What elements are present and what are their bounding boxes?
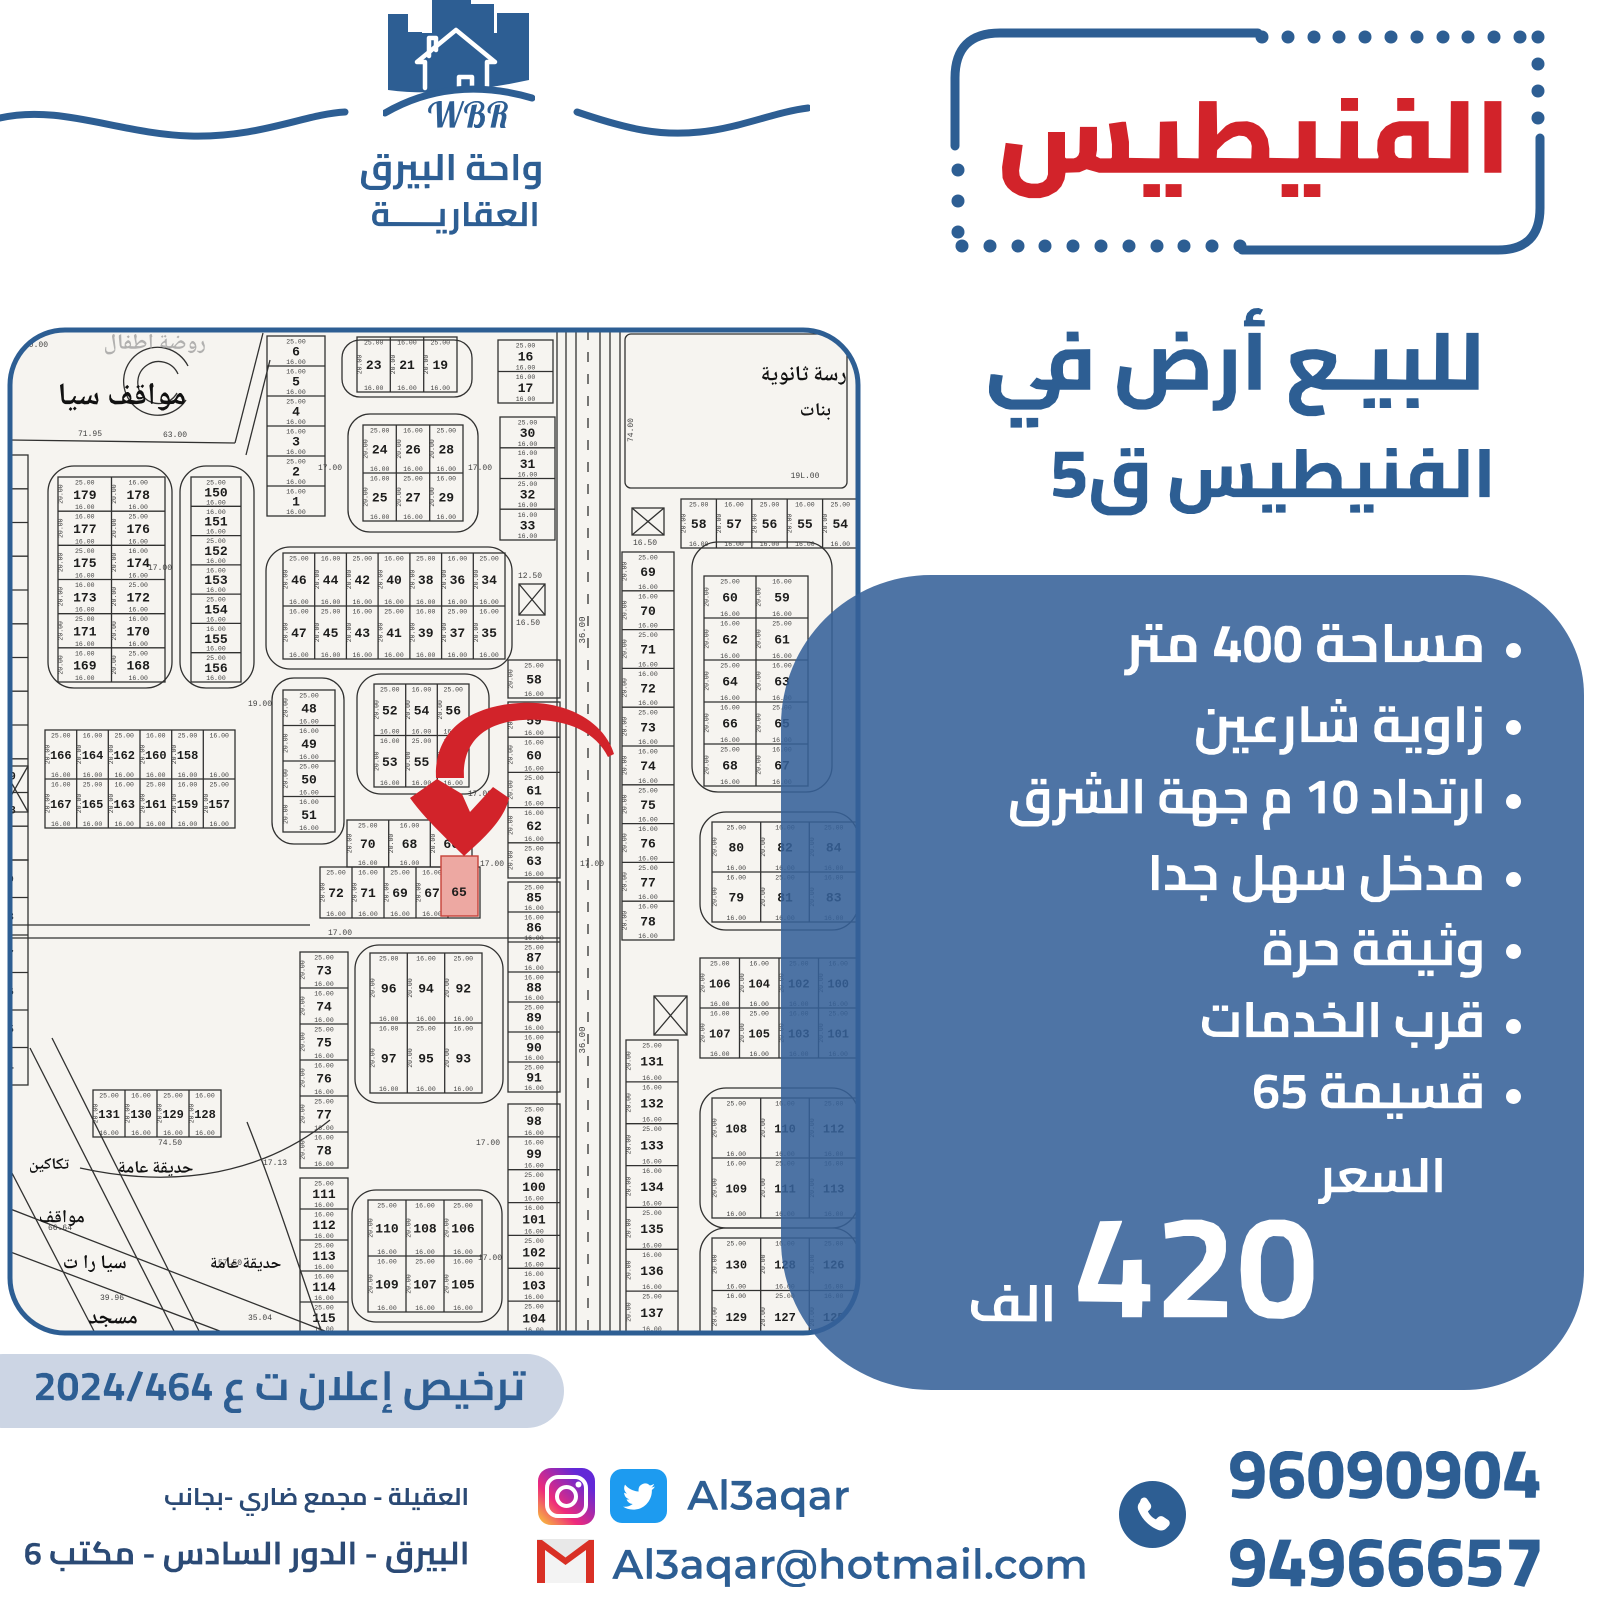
svg-text:107: 107 — [709, 1027, 731, 1041]
svg-text:16.00: 16.00 — [377, 1259, 397, 1266]
svg-text:20.00: 20.00 — [626, 1051, 633, 1071]
svg-text:16.00: 16.00 — [314, 1202, 334, 1209]
svg-text:25.00: 25.00 — [326, 870, 346, 877]
svg-text:25.00: 25.00 — [314, 1181, 334, 1188]
svg-text:20.00: 20.00 — [58, 518, 65, 538]
svg-text:164: 164 — [82, 749, 104, 763]
svg-text:135: 135 — [640, 1222, 664, 1237]
svg-text:16.00: 16.00 — [775, 1336, 795, 1343]
svg-text:20.00: 20.00 — [352, 883, 359, 903]
svg-text:16.00: 16.00 — [524, 801, 544, 808]
svg-text:16.00: 16.00 — [178, 782, 198, 789]
svg-text:20.00: 20.00 — [444, 1048, 451, 1068]
svg-text:159: 159 — [177, 798, 199, 812]
svg-text:25.00: 25.00 — [453, 1203, 473, 1210]
svg-text:20.00: 20.00 — [406, 1274, 413, 1294]
svg-text:16.00: 16.00 — [437, 514, 457, 521]
svg-text:16.00: 16.00 — [380, 780, 400, 787]
svg-text:48: 48 — [301, 701, 317, 716]
svg-text:16.00: 16.00 — [727, 1211, 747, 1218]
svg-text:80: 80 — [728, 841, 744, 856]
svg-text:16.00: 16.00 — [403, 514, 423, 521]
svg-text:20.00: 20.00 — [405, 751, 412, 771]
svg-text:36: 36 — [450, 573, 466, 588]
svg-text:47: 47 — [291, 626, 307, 641]
svg-text:16.00: 16.00 — [416, 599, 436, 606]
svg-text:16.00: 16.00 — [314, 1053, 334, 1060]
svg-text:25.00: 25.00 — [638, 865, 658, 872]
svg-text:20.00: 20.00 — [622, 562, 629, 582]
svg-text:16.00: 16.00 — [727, 1284, 747, 1291]
svg-text:20.00: 20.00 — [171, 745, 178, 765]
svg-text:106: 106 — [451, 1222, 475, 1237]
svg-text:20.00: 20.00 — [756, 671, 763, 691]
svg-text:28: 28 — [438, 443, 454, 458]
svg-text:20.00: 20.00 — [712, 837, 719, 857]
svg-text:12.50: 12.50 — [518, 572, 542, 581]
svg-text:167: 167 — [50, 798, 72, 812]
svg-text:16.00: 16.00 — [516, 396, 536, 403]
svg-text:3: 3 — [292, 435, 300, 450]
svg-text:59: 59 — [774, 591, 790, 606]
svg-text:16.00: 16.00 — [416, 1016, 436, 1023]
svg-text:25.00: 25.00 — [403, 476, 423, 483]
svg-text:16.00: 16.00 — [772, 653, 792, 660]
svg-text:27: 27 — [405, 491, 421, 506]
svg-text:20.00: 20.00 — [760, 1307, 767, 1327]
svg-text:2: 2 — [292, 465, 300, 480]
svg-text:20.00: 20.00 — [58, 621, 65, 641]
svg-text:20.00: 20.00 — [346, 623, 353, 643]
svg-text:20.00: 20.00 — [716, 514, 723, 534]
svg-text:20.00: 20.00 — [370, 978, 377, 998]
svg-text:25.00: 25.00 — [286, 459, 306, 466]
svg-text:19: 19 — [432, 358, 448, 373]
svg-text:16.00: 16.00 — [321, 556, 341, 563]
svg-text:39.96: 39.96 — [100, 1294, 124, 1303]
svg-text:16.00: 16.00 — [403, 428, 423, 435]
svg-text:16.00: 16.00 — [749, 1051, 769, 1058]
svg-text:20.00: 20.00 — [357, 355, 364, 375]
svg-text:16.00: 16.00 — [831, 541, 851, 548]
svg-text:16.00: 16.00 — [384, 599, 404, 606]
svg-text:16.00: 16.00 — [99, 1130, 119, 1137]
svg-text:100: 100 — [522, 1180, 546, 1195]
svg-text:20.00: 20.00 — [409, 570, 416, 590]
svg-text:73: 73 — [640, 720, 656, 735]
svg-text:25.00: 25.00 — [749, 1011, 769, 1018]
svg-text:20.00: 20.00 — [416, 883, 423, 903]
svg-text:16.00: 16.00 — [51, 772, 71, 779]
svg-text:16.00: 16.00 — [390, 911, 410, 918]
svg-text:25.00: 25.00 — [314, 1305, 334, 1312]
svg-text:99: 99 — [526, 1147, 542, 1162]
svg-text:134: 134 — [640, 1180, 664, 1195]
svg-text:17.00: 17.00 — [318, 464, 342, 473]
svg-text:16.00: 16.00 — [206, 646, 226, 653]
svg-text:25.00: 25.00 — [128, 650, 148, 657]
svg-text:58: 58 — [526, 673, 542, 688]
svg-text:25.00: 25.00 — [364, 340, 384, 347]
svg-text:170: 170 — [126, 624, 150, 639]
svg-text:16.00: 16.00 — [286, 369, 306, 376]
svg-text:16.00: 16.00 — [289, 609, 309, 616]
svg-text:16.00: 16.00 — [479, 652, 499, 659]
svg-text:20.00: 20.00 — [822, 514, 829, 534]
svg-text:20.00: 20.00 — [363, 487, 370, 507]
svg-text:50: 50 — [301, 772, 317, 787]
svg-text:16.00: 16.00 — [358, 860, 378, 867]
svg-text:16.00: 16.00 — [353, 599, 373, 606]
svg-text:25.00: 25.00 — [638, 710, 658, 717]
svg-text:25.00: 25.00 — [831, 502, 851, 509]
svg-text:16.00: 16.00 — [397, 385, 417, 392]
svg-text:20.00: 20.00 — [622, 639, 629, 659]
svg-text:150: 150 — [204, 485, 228, 500]
svg-text:127: 127 — [774, 1311, 796, 1325]
svg-text:16.00: 16.00 — [370, 466, 390, 473]
svg-text:25.00: 25.00 — [370, 428, 390, 435]
svg-text:16.00: 16.00 — [727, 875, 747, 882]
svg-text:16.00: 16.00 — [524, 1228, 544, 1235]
svg-text:25.00: 25.00 — [314, 955, 334, 962]
svg-text:16.00: 16.00 — [638, 623, 658, 630]
svg-text:16.00: 16.00 — [437, 476, 457, 483]
svg-text:165: 165 — [82, 798, 104, 812]
svg-text:16.00: 16.00 — [638, 778, 658, 785]
svg-text:20.00: 20.00 — [363, 439, 370, 459]
svg-text:16.00: 16.00 — [299, 754, 319, 761]
svg-text:25.00: 25.00 — [209, 782, 229, 789]
svg-text:16.00: 16.00 — [524, 1130, 544, 1137]
svg-text:151: 151 — [204, 515, 228, 530]
svg-text:1: 1 — [292, 495, 300, 510]
svg-text:54: 54 — [832, 517, 848, 532]
svg-text:25.00: 25.00 — [75, 480, 95, 487]
svg-text:95: 95 — [418, 1052, 434, 1067]
svg-text:25.00: 25.00 — [524, 945, 544, 952]
svg-text:16.00: 16.00 — [710, 1051, 730, 1058]
svg-text:16.00: 16.00 — [710, 1011, 730, 1018]
svg-text:25.00: 25.00 — [727, 825, 747, 832]
svg-text:25.00: 25.00 — [642, 1294, 662, 1301]
svg-text:20.00: 20.00 — [283, 733, 290, 753]
svg-text:16.00: 16.00 — [642, 1168, 662, 1175]
svg-text:16.00: 16.00 — [75, 573, 95, 580]
svg-text:25.00: 25.00 — [377, 1203, 397, 1210]
svg-text:17.00: 17.00 — [468, 464, 492, 473]
svg-text:16.00: 16.00 — [638, 661, 658, 668]
svg-text:71.95: 71.95 — [78, 430, 102, 439]
svg-text:16.00: 16.00 — [720, 611, 740, 618]
svg-text:153: 153 — [204, 573, 228, 588]
svg-text:25.00: 25.00 — [289, 556, 309, 563]
svg-text:16.00: 16.00 — [518, 450, 538, 457]
svg-text:16.00: 16.00 — [75, 650, 95, 657]
svg-text:16.00: 16.00 — [415, 1249, 435, 1256]
svg-text:16.00: 16.00 — [75, 538, 95, 545]
svg-text:16.00: 16.00 — [524, 1139, 544, 1146]
svg-text:16.00: 16.00 — [397, 340, 417, 347]
svg-text:25.00: 25.00 — [206, 538, 226, 545]
svg-text:16.00: 16.00 — [370, 514, 390, 521]
svg-text:25.00: 25.00 — [380, 687, 400, 694]
svg-text:16.00: 16.00 — [326, 911, 346, 918]
svg-text:16.00: 16.00 — [727, 915, 747, 922]
svg-text:16.00: 16.00 — [128, 504, 148, 511]
svg-text:20.00: 20.00 — [622, 911, 629, 931]
svg-text:31: 31 — [520, 457, 536, 472]
svg-text:16.00: 16.00 — [206, 499, 226, 506]
svg-text:16.00: 16.00 — [195, 1130, 215, 1137]
svg-text:16.00: 16.00 — [524, 1261, 544, 1268]
svg-text:25.00: 25.00 — [128, 514, 148, 521]
svg-text:25.00: 25.00 — [760, 502, 780, 509]
svg-text:20.00: 20.00 — [430, 834, 437, 854]
svg-text:25.00: 25.00 — [321, 609, 341, 616]
svg-text:90: 90 — [526, 1041, 542, 1056]
svg-text:16.00: 16.00 — [51, 782, 71, 789]
svg-text:61: 61 — [774, 633, 790, 648]
svg-text:16.00: 16.00 — [524, 965, 544, 972]
svg-text:113: 113 — [312, 1249, 336, 1264]
svg-text:102: 102 — [522, 1246, 546, 1261]
svg-text:108: 108 — [725, 1122, 747, 1136]
svg-text:16.00: 16.00 — [75, 641, 95, 648]
svg-text:52: 52 — [382, 703, 398, 718]
svg-text:20.00: 20.00 — [626, 1177, 633, 1197]
svg-text:16.00: 16.00 — [286, 479, 306, 486]
svg-text:16.00: 16.00 — [299, 799, 319, 806]
svg-text:20.00: 20.00 — [368, 1274, 375, 1294]
svg-text:20.00: 20.00 — [76, 794, 83, 814]
svg-text:20.00: 20.00 — [508, 780, 515, 800]
svg-text:107: 107 — [413, 1278, 436, 1293]
svg-text:19.00: 19.00 — [248, 700, 272, 709]
svg-text:16.00: 16.00 — [178, 772, 198, 779]
svg-text:20.00: 20.00 — [406, 1218, 413, 1238]
svg-text:68: 68 — [402, 837, 418, 852]
svg-text:103: 103 — [522, 1278, 546, 1293]
svg-text:25.00: 25.00 — [314, 1027, 334, 1034]
svg-text:16.00: 16.00 — [638, 700, 658, 707]
svg-text:16.00: 16.00 — [209, 772, 229, 779]
svg-text:25.00: 25.00 — [163, 1093, 183, 1100]
svg-text:20.00: 20.00 — [111, 655, 118, 675]
svg-text:25.00: 25.00 — [720, 663, 740, 670]
svg-text:86: 86 — [526, 921, 542, 936]
svg-text:129: 129 — [162, 1108, 184, 1122]
svg-text:172: 172 — [126, 590, 150, 605]
svg-text:20.00: 20.00 — [756, 755, 763, 775]
svg-text:16.00: 16.00 — [772, 579, 792, 586]
svg-text:6: 6 — [292, 345, 300, 360]
svg-text:17.13: 17.13 — [263, 1159, 287, 1168]
svg-text:137: 137 — [640, 1306, 663, 1321]
svg-text:74.50: 74.50 — [158, 1139, 182, 1148]
svg-text:20.00: 20.00 — [108, 745, 115, 765]
svg-text:35: 35 — [481, 626, 497, 641]
svg-text:17.00: 17.00 — [148, 564, 172, 573]
svg-text:16.00: 16.00 — [415, 1305, 435, 1312]
svg-text:16.00: 16.00 — [524, 975, 544, 982]
svg-text:25.00: 25.00 — [286, 399, 306, 406]
svg-text:16.00: 16.00 — [524, 740, 544, 747]
svg-text:20.00: 20.00 — [300, 1068, 307, 1088]
svg-text:16.00: 16.00 — [642, 1200, 662, 1207]
svg-text:16.00: 16.00 — [314, 1089, 334, 1096]
svg-text:16.00: 16.00 — [416, 609, 436, 616]
svg-text:20.00: 20.00 — [320, 883, 327, 903]
svg-text:20.00: 20.00 — [370, 1048, 377, 1068]
svg-text:16.00: 16.00 — [638, 593, 658, 600]
svg-text:16.00: 16.00 — [518, 533, 538, 540]
svg-text:16.00: 16.00 — [720, 705, 740, 712]
svg-text:16.00: 16.00 — [377, 1249, 397, 1256]
svg-text:20.00: 20.00 — [429, 439, 436, 459]
svg-text:70: 70 — [360, 837, 376, 852]
svg-text:25.00: 25.00 — [379, 956, 399, 963]
svg-text:16.00: 16.00 — [358, 870, 378, 877]
svg-text:20.00: 20.00 — [140, 794, 147, 814]
svg-text:16.00: 16.00 — [437, 466, 457, 473]
svg-text:25.00: 25.00 — [178, 733, 198, 740]
svg-text:20.00: 20.00 — [58, 484, 65, 504]
svg-text:25.00: 25.00 — [286, 339, 306, 346]
svg-text:25.00: 25.00 — [524, 1172, 544, 1179]
svg-text:16.00: 16.00 — [370, 476, 390, 483]
svg-text:20.00: 20.00 — [508, 669, 515, 689]
svg-text:40: 40 — [386, 573, 402, 588]
svg-text:51: 51 — [301, 808, 317, 823]
svg-text:20.00: 20.00 — [626, 1260, 633, 1280]
svg-text:20.00: 20.00 — [171, 794, 178, 814]
svg-text:16.00: 16.00 — [524, 1205, 544, 1212]
svg-text:16.00: 16.00 — [206, 558, 226, 565]
svg-text:129: 129 — [725, 1311, 747, 1325]
svg-text:20.00: 20.00 — [508, 745, 515, 765]
svg-text:20.00: 20.00 — [300, 960, 307, 980]
svg-text:25.00: 25.00 — [314, 1099, 334, 1106]
svg-text:16.00: 16.00 — [379, 1026, 399, 1033]
svg-text:16.00: 16.00 — [727, 1336, 747, 1343]
svg-text:109: 109 — [375, 1278, 399, 1293]
svg-text:25.00: 25.00 — [524, 1065, 544, 1072]
svg-text:60: 60 — [526, 749, 542, 764]
svg-text:16.00: 16.00 — [638, 584, 658, 591]
svg-text:25.00: 25.00 — [51, 733, 71, 740]
svg-text:16.00: 16.00 — [380, 738, 400, 745]
svg-text:25.00: 25.00 — [516, 343, 536, 350]
svg-text:20.00: 20.00 — [157, 1104, 164, 1124]
svg-text:16.00: 16.00 — [128, 548, 148, 555]
svg-text:25.00: 25.00 — [638, 787, 658, 794]
svg-text:32: 32 — [520, 488, 536, 503]
svg-text:98: 98 — [526, 1114, 542, 1129]
svg-text:79: 79 — [728, 891, 744, 906]
svg-text:25.00: 25.00 — [720, 579, 740, 586]
svg-text:41: 41 — [386, 626, 402, 641]
svg-text:16.00: 16.00 — [516, 365, 536, 372]
svg-text:16.00: 16.00 — [454, 1026, 474, 1033]
svg-text:16.00: 16.00 — [720, 737, 740, 744]
svg-text:16.00: 16.00 — [299, 728, 319, 735]
svg-text:16.00: 16.00 — [403, 466, 423, 473]
svg-text:20.00: 20.00 — [704, 587, 711, 607]
svg-text:112: 112 — [312, 1218, 336, 1233]
svg-text:16.00: 16.00 — [524, 1085, 544, 1092]
svg-text:16.00: 16.00 — [314, 1295, 334, 1302]
svg-text:157: 157 — [208, 798, 230, 812]
svg-text:16.00: 16.00 — [286, 489, 306, 496]
svg-text:163: 163 — [113, 798, 135, 812]
svg-text:25.00: 25.00 — [415, 1259, 435, 1266]
svg-text:67: 67 — [424, 886, 440, 901]
svg-text:16.00: 16.00 — [114, 782, 134, 789]
svg-text:16.00: 16.00 — [638, 855, 658, 862]
svg-text:115: 115 — [312, 1311, 336, 1326]
svg-text:16.00: 16.00 — [524, 810, 544, 817]
svg-text:25.00: 25.00 — [772, 621, 792, 628]
svg-text:42: 42 — [354, 573, 370, 588]
svg-text:34: 34 — [481, 573, 497, 588]
svg-text:16.00: 16.00 — [448, 652, 468, 659]
svg-text:20.00: 20.00 — [622, 756, 629, 776]
svg-text:16.00: 16.00 — [364, 385, 384, 392]
svg-text:73: 73 — [316, 964, 332, 979]
svg-text:16.00: 16.00 — [524, 995, 544, 1002]
svg-text:20.00: 20.00 — [508, 851, 515, 871]
svg-text:20.00: 20.00 — [111, 553, 118, 573]
svg-text:20.00: 20.00 — [681, 514, 688, 534]
svg-text:16.00: 16.00 — [128, 538, 148, 545]
svg-text:16.00: 16.00 — [314, 1135, 334, 1142]
svg-text:20.00: 20.00 — [508, 815, 515, 835]
svg-text:108: 108 — [413, 1222, 437, 1237]
svg-text:132: 132 — [640, 1097, 664, 1112]
svg-text:87: 87 — [526, 951, 542, 966]
svg-text:16.00: 16.00 — [75, 582, 95, 589]
svg-text:20.00: 20.00 — [626, 1219, 633, 1239]
svg-text:76: 76 — [640, 837, 656, 852]
svg-text:128: 128 — [194, 1108, 216, 1122]
svg-text:130: 130 — [130, 1108, 152, 1122]
svg-text:16.00: 16.00 — [431, 385, 451, 392]
svg-text:20.00: 20.00 — [314, 570, 321, 590]
svg-text:20.00: 20.00 — [140, 745, 147, 765]
svg-text:105: 105 — [748, 1027, 770, 1041]
svg-text:25.00: 25.00 — [443, 687, 463, 694]
svg-text:23: 23 — [366, 358, 382, 373]
svg-text:20.00: 20.00 — [704, 671, 711, 691]
svg-text:89: 89 — [526, 1011, 542, 1026]
svg-text:20.00: 20.00 — [111, 518, 118, 538]
svg-text:69: 69 — [392, 886, 408, 901]
svg-text:25.00: 25.00 — [518, 481, 538, 488]
svg-text:20.00: 20.00 — [388, 834, 395, 854]
svg-text:16.00: 16.00 — [638, 817, 658, 824]
svg-text:25.00: 25.00 — [431, 340, 451, 347]
svg-text:16.00: 16.00 — [146, 733, 166, 740]
svg-text:62: 62 — [526, 819, 542, 834]
svg-text:16.00: 16.00 — [51, 821, 71, 828]
svg-text:25.00: 25.00 — [353, 556, 373, 563]
svg-text:20.00: 20.00 — [704, 629, 711, 649]
svg-text:16.00: 16.00 — [384, 556, 404, 563]
svg-text:49: 49 — [301, 737, 317, 752]
svg-text:20.00: 20.00 — [384, 883, 391, 903]
svg-text:16.00: 16.00 — [727, 1293, 747, 1300]
